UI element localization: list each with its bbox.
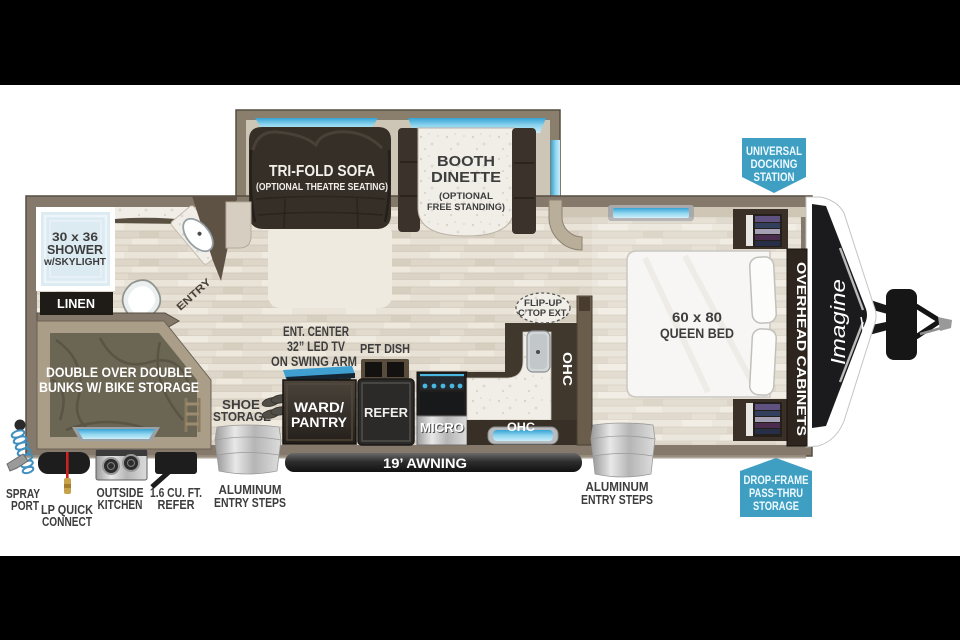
svg-text:PASS-THRU: PASS-THRU xyxy=(749,486,803,500)
svg-text:REFER: REFER xyxy=(364,405,409,420)
svg-text:C’TOP EXT.: C’TOP EXT. xyxy=(518,308,568,319)
svg-text:KITCHEN: KITCHEN xyxy=(98,498,143,512)
svg-text:DOCKING: DOCKING xyxy=(751,157,798,171)
svg-text:DOUBLE OVER DOUBLE: DOUBLE OVER DOUBLE xyxy=(46,365,192,380)
svg-text:FREE STANDING): FREE STANDING) xyxy=(427,202,505,213)
svg-text:LINEN: LINEN xyxy=(57,297,95,311)
svg-text:ENT. CENTER: ENT. CENTER xyxy=(283,324,349,339)
svg-text:Imagine: Imagine xyxy=(828,279,850,365)
svg-text:TRI-FOLD SOFA: TRI-FOLD SOFA xyxy=(269,163,375,180)
svg-text:MICRO: MICRO xyxy=(420,420,464,435)
svg-text:STATION: STATION xyxy=(754,170,795,184)
svg-text:ENTRY STEPS: ENTRY STEPS xyxy=(581,492,653,507)
svg-text:32” LED TV: 32” LED TV xyxy=(287,339,345,354)
svg-text:UNIVERSAL: UNIVERSAL xyxy=(746,144,802,158)
svg-text:OHC: OHC xyxy=(560,352,574,386)
svg-text:(OPTIONAL: (OPTIONAL xyxy=(439,191,493,202)
svg-text:REFER: REFER xyxy=(158,498,195,512)
svg-text:QUEEN BED: QUEEN BED xyxy=(660,325,734,341)
svg-text:BOOTH: BOOTH xyxy=(437,154,495,170)
svg-text:ENTRY STEPS: ENTRY STEPS xyxy=(214,495,286,510)
svg-text:19’ AWNING: 19’ AWNING xyxy=(383,455,467,471)
svg-text:WARD/: WARD/ xyxy=(294,400,344,415)
svg-text:CONNECT: CONNECT xyxy=(42,515,92,529)
svg-text:PORT: PORT xyxy=(11,499,39,513)
svg-text:DROP-FRAME: DROP-FRAME xyxy=(744,473,809,487)
svg-text:STORAGE: STORAGE xyxy=(753,499,799,513)
svg-text:60 x 80: 60 x 80 xyxy=(672,309,722,325)
svg-text:OVERHEAD CABINETS: OVERHEAD CABINETS xyxy=(794,262,808,436)
svg-text:w/SKYLIGHT: w/SKYLIGHT xyxy=(43,256,107,268)
svg-text:(OPTIONAL THEATRE SEATING): (OPTIONAL THEATRE SEATING) xyxy=(256,181,388,193)
svg-text:SHOWER: SHOWER xyxy=(47,242,104,257)
svg-text:PANTRY: PANTRY xyxy=(291,415,347,430)
svg-text:OHC: OHC xyxy=(507,420,535,434)
svg-text:DINETTE: DINETTE xyxy=(431,170,501,186)
svg-text:BUNKS W/ BIKE STORAGE: BUNKS W/ BIKE STORAGE xyxy=(39,380,199,395)
svg-text:PET DISH: PET DISH xyxy=(360,341,410,356)
